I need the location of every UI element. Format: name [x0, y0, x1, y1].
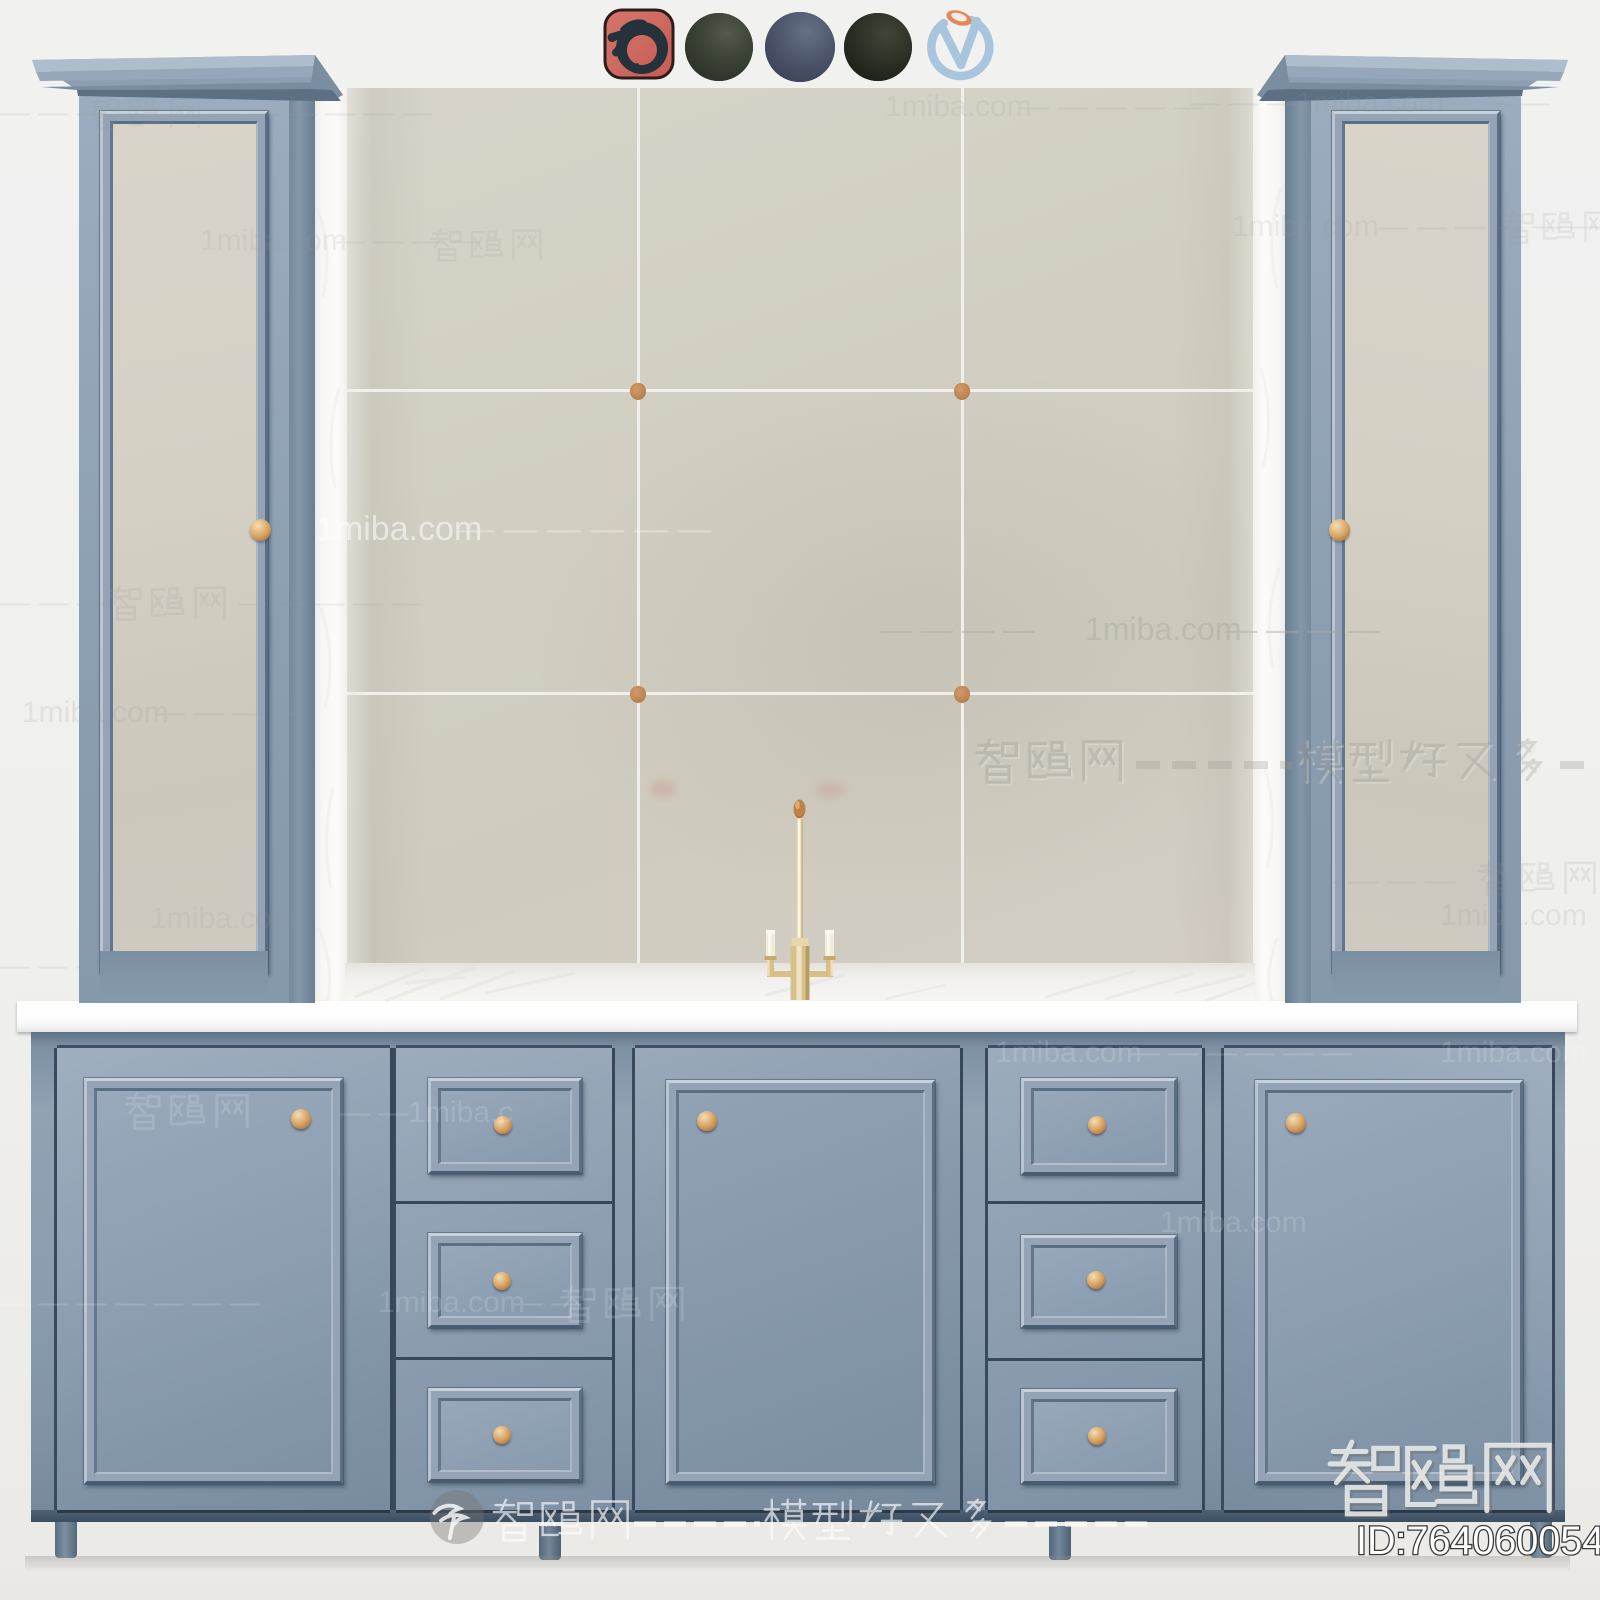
svg-text:— — —: — — — [0, 949, 107, 982]
svg-text:— — — —: — — — — [1310, 864, 1455, 897]
svg-text:— — — — — —: — — — — — — [210, 96, 432, 129]
svg-text:— — — — —: — — — — — [1020, 90, 1203, 123]
svg-text:— — — — — —: — — — — — — [1130, 1036, 1352, 1069]
svg-text:1miba.com: 1miba.com [1440, 1036, 1587, 1069]
svg-text:— — —1miba.com— — —: — — —1miba.com— — — [1190, 86, 1550, 119]
svg-text:1miba.com: 1miba.com [995, 1036, 1142, 1069]
svg-text:— —1miba.c: — —1miba.c [340, 1096, 513, 1129]
svg-text:— — — — —: — — — — — [1455, 209, 1600, 242]
svg-text:1miba.com: 1miba.com [200, 224, 347, 257]
svg-text:— — — —: — — — — [0, 96, 145, 129]
svg-text:1miba.com: 1miba.com [22, 696, 169, 729]
svg-text:— — — — —: — — — — — [238, 586, 421, 619]
svg-text:1miba.com: 1miba.com [885, 90, 1032, 123]
svg-text:— — —: — — — [0, 586, 107, 619]
svg-text:ID:764060054: ID:764060054 [1356, 1519, 1600, 1563]
svg-text:— — — —: — — — — [1225, 611, 1380, 647]
svg-text:1miba.com: 1miba.com [1440, 899, 1587, 932]
svg-text:1miba.com: 1miba.com [1160, 1206, 1307, 1239]
svg-text:1miba.com: 1miba.com [150, 902, 297, 935]
svg-text:— — — —: — — — — [880, 611, 1035, 647]
svg-text:— — — — — —: — — — — — — [460, 510, 711, 548]
svg-text:1miba.com: 1miba.com [316, 510, 482, 548]
svg-text:— — — —: — — — — [155, 696, 300, 729]
svg-text:1miba.com: 1miba.com [378, 1286, 525, 1319]
svg-text:— — — — — — —: — — — — — — — [0, 1286, 260, 1319]
svg-text:1miba.com: 1miba.com [1085, 611, 1242, 647]
